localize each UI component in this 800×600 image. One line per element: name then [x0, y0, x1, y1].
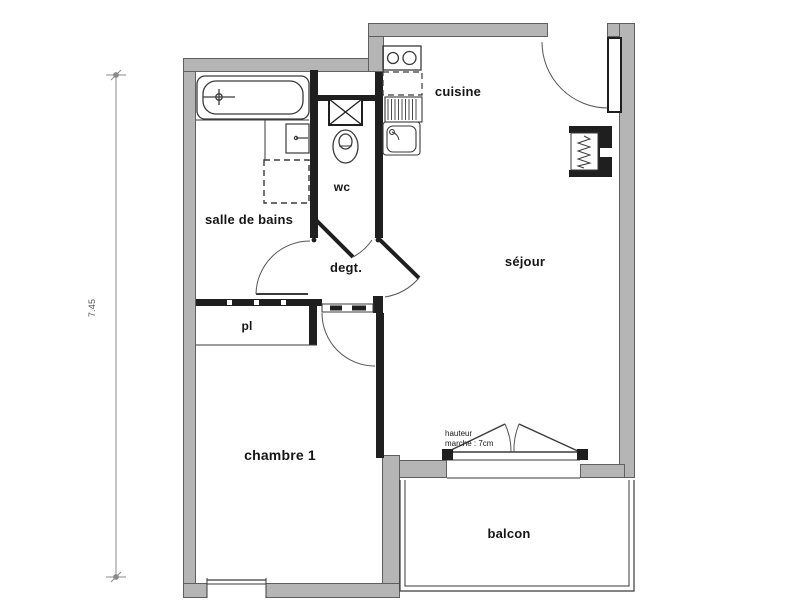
chambre-door [322, 304, 375, 366]
label-balcon: balcon [459, 526, 559, 541]
label-degt: degt. [306, 260, 386, 275]
label-cuisine: cuisine [418, 84, 498, 99]
label-wc: wc [322, 180, 362, 194]
wall-wc-top [318, 95, 383, 101]
label-step-note: hauteur marche : 7cm [445, 429, 515, 449]
duct-icon [329, 99, 362, 125]
label-salle-de-bains: salle de bains [194, 212, 304, 227]
wall-placard-right [309, 305, 317, 345]
step-note-line2: marche : 7cm [445, 439, 515, 449]
step-note-line1: hauteur [445, 429, 515, 439]
label-pl: pl [227, 319, 267, 333]
toilet-icon [333, 130, 358, 163]
dimension-line [106, 70, 126, 582]
floor-plan: salle de bains wc cuisine séjour degt. p… [0, 0, 800, 600]
wall-wc-right [375, 72, 383, 238]
wall-bottom-right [265, 583, 400, 598]
stove-icon [383, 46, 421, 70]
label-sejour: séjour [485, 254, 565, 269]
wall-bath-wc [310, 70, 318, 238]
label-chambre: chambre 1 [220, 447, 340, 463]
wall-top-left [183, 58, 380, 72]
sink-icon [383, 97, 422, 155]
wall-chambre-sejour [376, 313, 384, 458]
wall-top-right-a [368, 23, 548, 37]
wall-chambre-balcon [382, 455, 400, 598]
washbasin-icon [265, 120, 309, 160]
window [207, 578, 266, 598]
wall-door-post [373, 296, 383, 313]
entrance-door [542, 24, 621, 112]
electrical-panel-icon [569, 126, 612, 177]
wall-left [183, 58, 196, 598]
counter-icon [383, 72, 422, 95]
wc-door [316, 220, 380, 257]
bathtub-icon [196, 76, 309, 120]
wall-sejour-bottom-left [398, 460, 447, 478]
wall-bottom-left [183, 583, 208, 598]
label-dimension-745: 7.45 [87, 288, 97, 328]
plan-symbols [0, 0, 800, 600]
wall-degt-chambre [196, 299, 322, 306]
washing-machine-icon [264, 160, 309, 203]
wall-right [619, 23, 635, 478]
wall-sejour-bottom-right [580, 464, 625, 478]
